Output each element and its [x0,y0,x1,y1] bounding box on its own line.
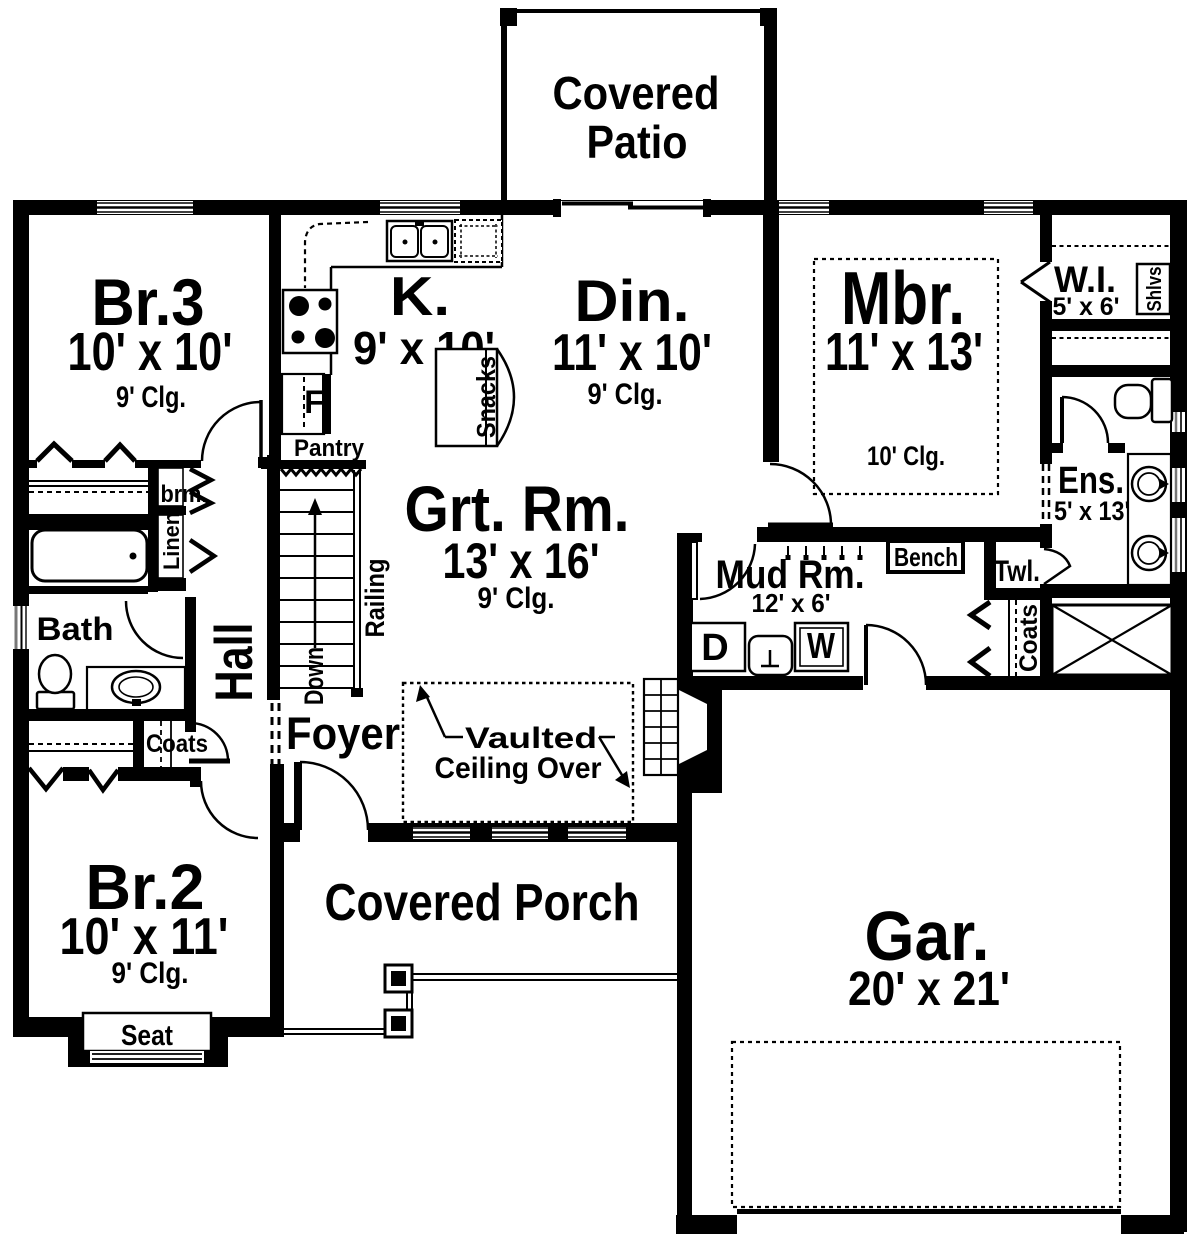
svg-text:Patio: Patio [587,116,688,168]
svg-text:20' x 21': 20' x 21' [848,963,1010,1016]
svg-text:F: F [304,384,324,420]
svg-text:Covered: Covered [553,67,720,119]
svg-text:Bath: Bath [37,611,114,647]
svg-text:Shlvs: Shlvs [1144,267,1166,312]
svg-text:Seat: Seat [121,1020,173,1052]
svg-text:11' x 13': 11' x 13' [825,322,983,382]
svg-text:Railing: Railing [360,559,390,638]
svg-text:13' x 16': 13' x 16' [443,533,600,589]
svg-text:Bench: Bench [894,542,958,572]
svg-text:9' Clg.: 9' Clg. [112,957,189,990]
svg-text:Foyer: Foyer [286,708,400,759]
svg-text:11' x 10': 11' x 10' [552,324,712,382]
svg-text:Snacks: Snacks [471,356,501,438]
svg-text:Pantry: Pantry [294,435,365,462]
svg-text:12' x 6': 12' x 6' [752,588,831,618]
svg-text:5' x 6': 5' x 6' [1053,293,1120,321]
svg-text:9' Clg.: 9' Clg. [588,378,663,411]
svg-text:Coats: Coats [1015,604,1043,672]
svg-text:D: D [701,627,728,669]
svg-text:W: W [807,625,835,666]
svg-text:10' x 10': 10' x 10' [68,322,233,382]
svg-text:Covered Porch: Covered Porch [325,874,640,932]
svg-text:Coats: Coats [146,730,208,758]
svg-text:10' Clg.: 10' Clg. [867,441,945,471]
svg-text:5' x 13': 5' x 13' [1054,496,1130,526]
svg-text:Hall: Hall [205,623,264,702]
svg-text:9' Clg.: 9' Clg. [116,381,186,414]
svg-text:Vaulted: Vaulted [465,722,597,755]
svg-text:9' Clg.: 9' Clg. [478,582,555,615]
svg-text:Ceiling Over: Ceiling Over [435,752,602,785]
svg-text:Down: Down [299,647,329,705]
svg-text:K.: K. [390,265,450,327]
svg-text:Linen: Linen [159,512,184,570]
svg-text:Twl.: Twl. [994,555,1040,588]
